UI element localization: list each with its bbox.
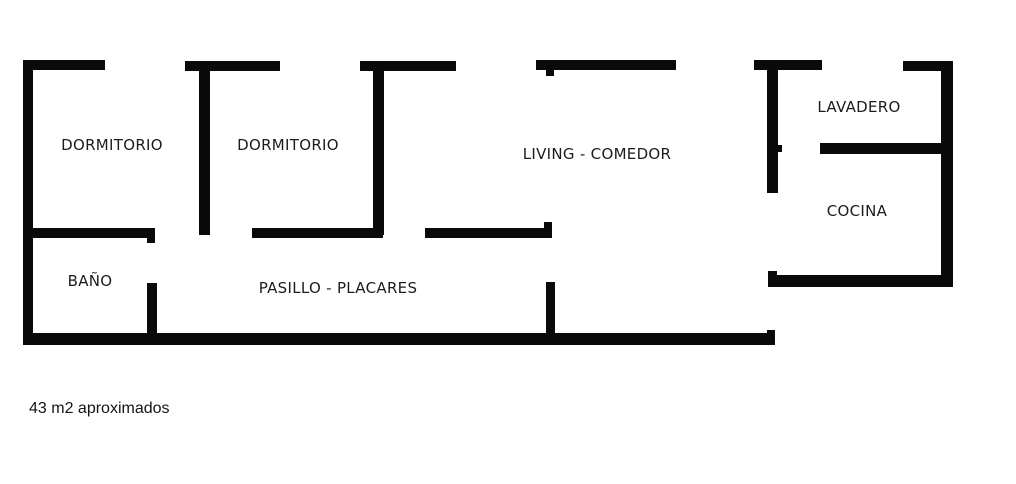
tick-bottom-wall-end: [767, 330, 775, 334]
room-label-lavadero: LAVADERO: [817, 98, 900, 116]
floor-plan: DORMITORIODORMITORIOLIVING - COMEDORLAVA…: [0, 0, 1016, 484]
room-label-living-comedor: LIVING - COMEDOR: [523, 145, 672, 163]
wall-divider-living-lavadero: [767, 66, 778, 193]
wall-top-segment-1: [23, 60, 105, 70]
wall-outer-left: [23, 60, 33, 345]
area-caption: 43 m2 aproximados: [29, 400, 170, 418]
tick-lavadero-door-jamb: [778, 145, 782, 152]
wall-divider-dorm1-dorm2: [199, 66, 210, 235]
room-label-dormitorio-1: DORMITORIO: [61, 136, 163, 154]
tick-cocina-wall-end: [768, 271, 777, 276]
room-label-pasillo-placares: PASILLO - PLACARES: [259, 279, 418, 297]
wall-top-segment-6: [903, 61, 953, 71]
wall-cocina-bottom: [768, 275, 953, 287]
room-label-bano: BAÑO: [68, 272, 113, 290]
wall-outer-right: [941, 61, 953, 287]
wall-bano-top: [27, 228, 155, 238]
wall-pasillo-top-right: [425, 228, 552, 238]
tick-bano-door-jamb: [147, 238, 155, 243]
tick-pasillo-door-jamb: [544, 222, 552, 228]
wall-top-segment-5: [754, 60, 822, 70]
tick-living-door-jamb: [546, 70, 554, 76]
wall-placard-divider-1: [147, 283, 157, 339]
wall-divider-dorm2-living: [373, 66, 384, 235]
wall-placard-divider-2: [546, 282, 555, 339]
wall-divider-lavadero-cocina: [820, 143, 953, 154]
room-label-dormitorio-2: DORMITORIO: [237, 136, 339, 154]
wall-top-segment-4: [536, 60, 676, 70]
room-label-cocina: COCINA: [827, 202, 887, 220]
wall-outer-bottom: [23, 333, 775, 345]
wall-pasillo-top-left: [252, 228, 383, 238]
